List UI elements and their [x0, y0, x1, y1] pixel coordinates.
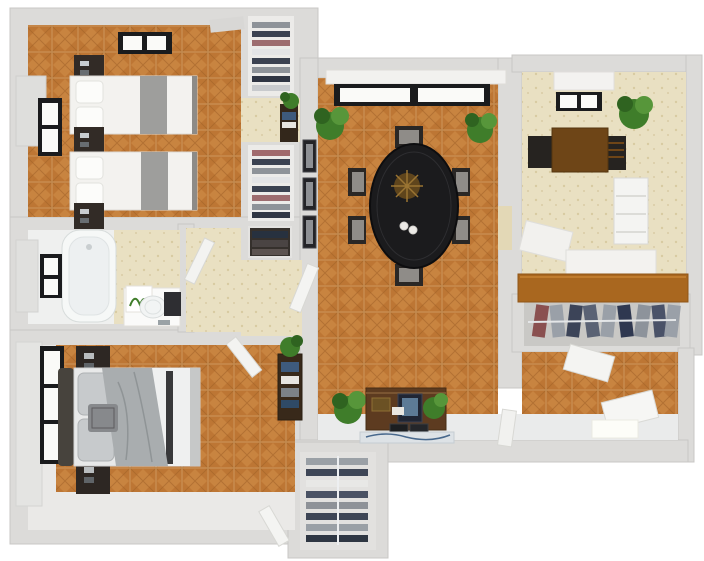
wall-frame-3-photo [306, 220, 313, 244]
bookshelf-item-1 [281, 362, 299, 372]
floor-hall-lower [241, 260, 302, 336]
nightstand-1c-radio [80, 218, 89, 223]
bathroom-window-pane-a [44, 258, 58, 275]
twin-bed-b-pillow-1 [76, 157, 103, 179]
hall-shelf-book-blue [282, 112, 296, 120]
desk-photo-large-image [402, 398, 418, 416]
nightstand-2b-clock [84, 467, 94, 473]
nightstand-2a-clock [84, 353, 94, 359]
twin-bed-b-footboard [192, 152, 197, 210]
nightstand-1a-radio [80, 70, 89, 75]
dining-chair-left-2-seat [352, 220, 364, 240]
closet-top-shelf-7 [252, 76, 290, 82]
bookshelf-item-2 [281, 376, 299, 384]
bathroom-faucet [158, 320, 170, 325]
dining-chair-left-1-seat [352, 172, 364, 192]
closet-mid-shelf-2 [252, 159, 290, 165]
closet-low-garment-2 [252, 240, 288, 247]
dining-table [370, 144, 458, 268]
bedroom2-window-pane-a [44, 351, 60, 384]
floor-plan-svg [0, 0, 704, 561]
kitchen-counter-low [566, 250, 656, 276]
dining-plant-right-3 [465, 113, 479, 127]
closet-low-garment-3 [252, 249, 288, 255]
twin-bed-a-pillow-2 [76, 107, 103, 129]
kitchen-chair-left [528, 136, 554, 168]
kitchen-skylight-pane-b [581, 95, 597, 108]
dining-chair-bottom-seat [399, 268, 419, 282]
dining-window-pane-a [340, 88, 410, 102]
bathtub-drain [86, 244, 92, 250]
closet-top-shelf-4 [252, 49, 290, 55]
closet-mid-shelf-6 [252, 195, 290, 201]
closet-mid-shelf-4 [252, 177, 290, 183]
double-bed-stripe [166, 371, 173, 464]
bathroom-hamper [164, 292, 181, 316]
bookshelf-item-4 [281, 400, 299, 408]
desk-shelf-plant-2 [434, 393, 448, 407]
closet-top-shelf-1 [252, 22, 290, 28]
dining-plant-left-2 [331, 107, 349, 125]
bookshelf-plant-2 [291, 335, 303, 347]
closet-mid-shelf-5 [252, 186, 290, 192]
bedroom1-skylight-pane-a [123, 36, 142, 50]
nightstand-1c-clock [80, 209, 89, 214]
closet-top-shelf-6 [252, 67, 290, 73]
kitchen-plant-3 [617, 96, 633, 112]
wall-frame-2-photo [306, 182, 313, 206]
twin-bed-b-pillow-2 [76, 183, 103, 205]
apartment-shapes [10, 8, 702, 558]
bedroom2-window-pane-c [44, 424, 60, 460]
desk-plant-3 [332, 393, 348, 409]
closet-top-shelf-2 [252, 31, 290, 37]
dining-window-pane-b [418, 88, 484, 102]
closet-mid-shelf-1 [252, 150, 290, 156]
floor-plan-render [0, 0, 704, 561]
dining-wall-ledge [498, 206, 512, 250]
closet-mid-shelf-8 [252, 212, 290, 218]
kitchen-skylight-panel [554, 72, 614, 90]
wall-frame-1-photo [306, 144, 313, 168]
dining-plant-left-3 [314, 108, 330, 124]
dining-chair-right-2-seat [456, 220, 468, 240]
kitchen-counter-brown [518, 274, 688, 302]
kitchen-table [552, 128, 608, 172]
nightstand-1c [74, 203, 104, 229]
desk-frame-gold [372, 398, 390, 411]
hall-shelf-book-white [282, 122, 296, 128]
desk-card-white [392, 407, 404, 415]
hall-shelf-plant-2 [280, 92, 290, 102]
bedroom2-curtain [16, 342, 42, 506]
nightstand-1b-radio [80, 142, 89, 147]
dining-window-sill [326, 70, 506, 84]
twin-bed-b-runner [141, 152, 168, 210]
desk-plant-2 [348, 391, 366, 409]
double-bed-foot [190, 368, 200, 466]
kitchen-skylight-pane-a [560, 95, 577, 108]
bedroom1-window-pane-a [42, 103, 58, 125]
dining-cup-1 [400, 222, 408, 230]
bathroom-sink [140, 296, 166, 318]
dining-plant-right-2 [481, 113, 497, 129]
bathroom-curtain [16, 240, 38, 312]
twin-bed-a-pillow-1 [76, 81, 103, 103]
closet-top-shelf-8 [252, 85, 290, 91]
bathroom-window-pane-b [44, 279, 58, 295]
wall-kitchen-top [512, 55, 702, 72]
dining-chair-right-1-seat [456, 172, 468, 192]
kitchen-fridge [614, 178, 648, 244]
nightstand-1b-clock [80, 133, 89, 138]
closet-mid-shelf-3 [252, 168, 290, 174]
dining-chair-top-seat [399, 130, 419, 144]
twin-bed-a-footboard [192, 76, 197, 134]
twin-bed-a-runner [140, 76, 167, 134]
dining-cup-2 [409, 226, 417, 234]
nightstand-1b [74, 127, 104, 155]
entry-doorway-light [592, 420, 638, 438]
nightstand-1a-clock [80, 61, 89, 66]
bedroom2-window-pane-b [44, 388, 60, 420]
bedroom1-window-pane-b [42, 129, 58, 152]
kitchen-plant-2 [635, 96, 653, 114]
double-bed-headboard [58, 368, 74, 466]
nightstand-2b-radio [84, 477, 94, 483]
closet-low-garment-1 [252, 231, 288, 238]
bedroom1-skylight-pane-b [147, 36, 166, 50]
bookshelf-item-3 [281, 388, 299, 397]
closet-top-shelf-5 [252, 58, 290, 64]
closet-mid-shelf-7 [252, 204, 290, 210]
closet-top-shelf-3 [252, 40, 290, 46]
